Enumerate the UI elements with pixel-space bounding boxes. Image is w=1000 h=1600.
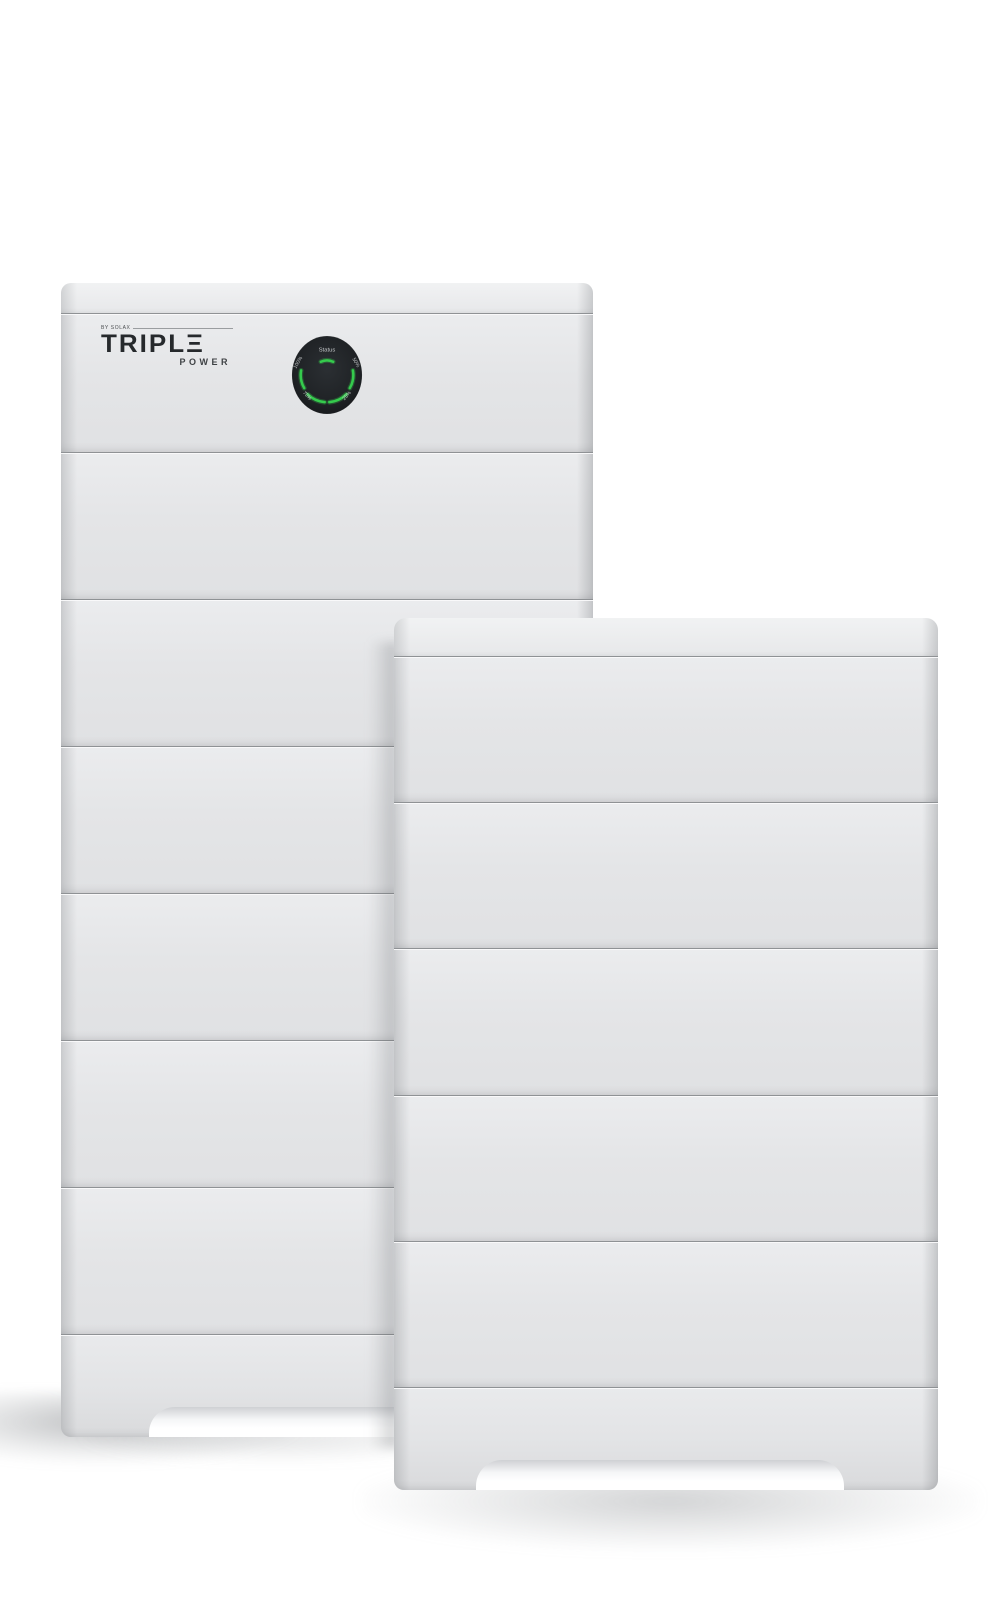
brand-name: TRIPLΞ xyxy=(101,331,233,357)
brand-logo: BY SOLAX TRIPLΞ POWER xyxy=(101,326,233,367)
led-arc-status xyxy=(321,360,333,361)
right-tower-feet-notch xyxy=(476,1460,844,1490)
brand-subtext: POWER xyxy=(101,358,233,367)
battery-module xyxy=(394,948,938,1094)
battery-module xyxy=(61,452,593,599)
product-stage: BY SOLAX TRIPLΞ POWER Status xyxy=(0,0,1000,1600)
left-tower-top-cap xyxy=(61,283,593,313)
battery-tower-right xyxy=(394,618,938,1490)
battery-module xyxy=(394,1241,938,1387)
battery-module xyxy=(394,656,938,802)
battery-module xyxy=(394,802,938,948)
soc-status-dial: Status 100% 50% 75% 25% xyxy=(290,334,364,416)
left-tower-display-module: BY SOLAX TRIPLΞ POWER Status xyxy=(61,313,593,452)
right-tower-top-cap xyxy=(394,618,938,656)
right-tower-base xyxy=(394,1387,938,1490)
battery-module xyxy=(394,1095,938,1241)
dial-status-label: Status xyxy=(319,348,336,354)
